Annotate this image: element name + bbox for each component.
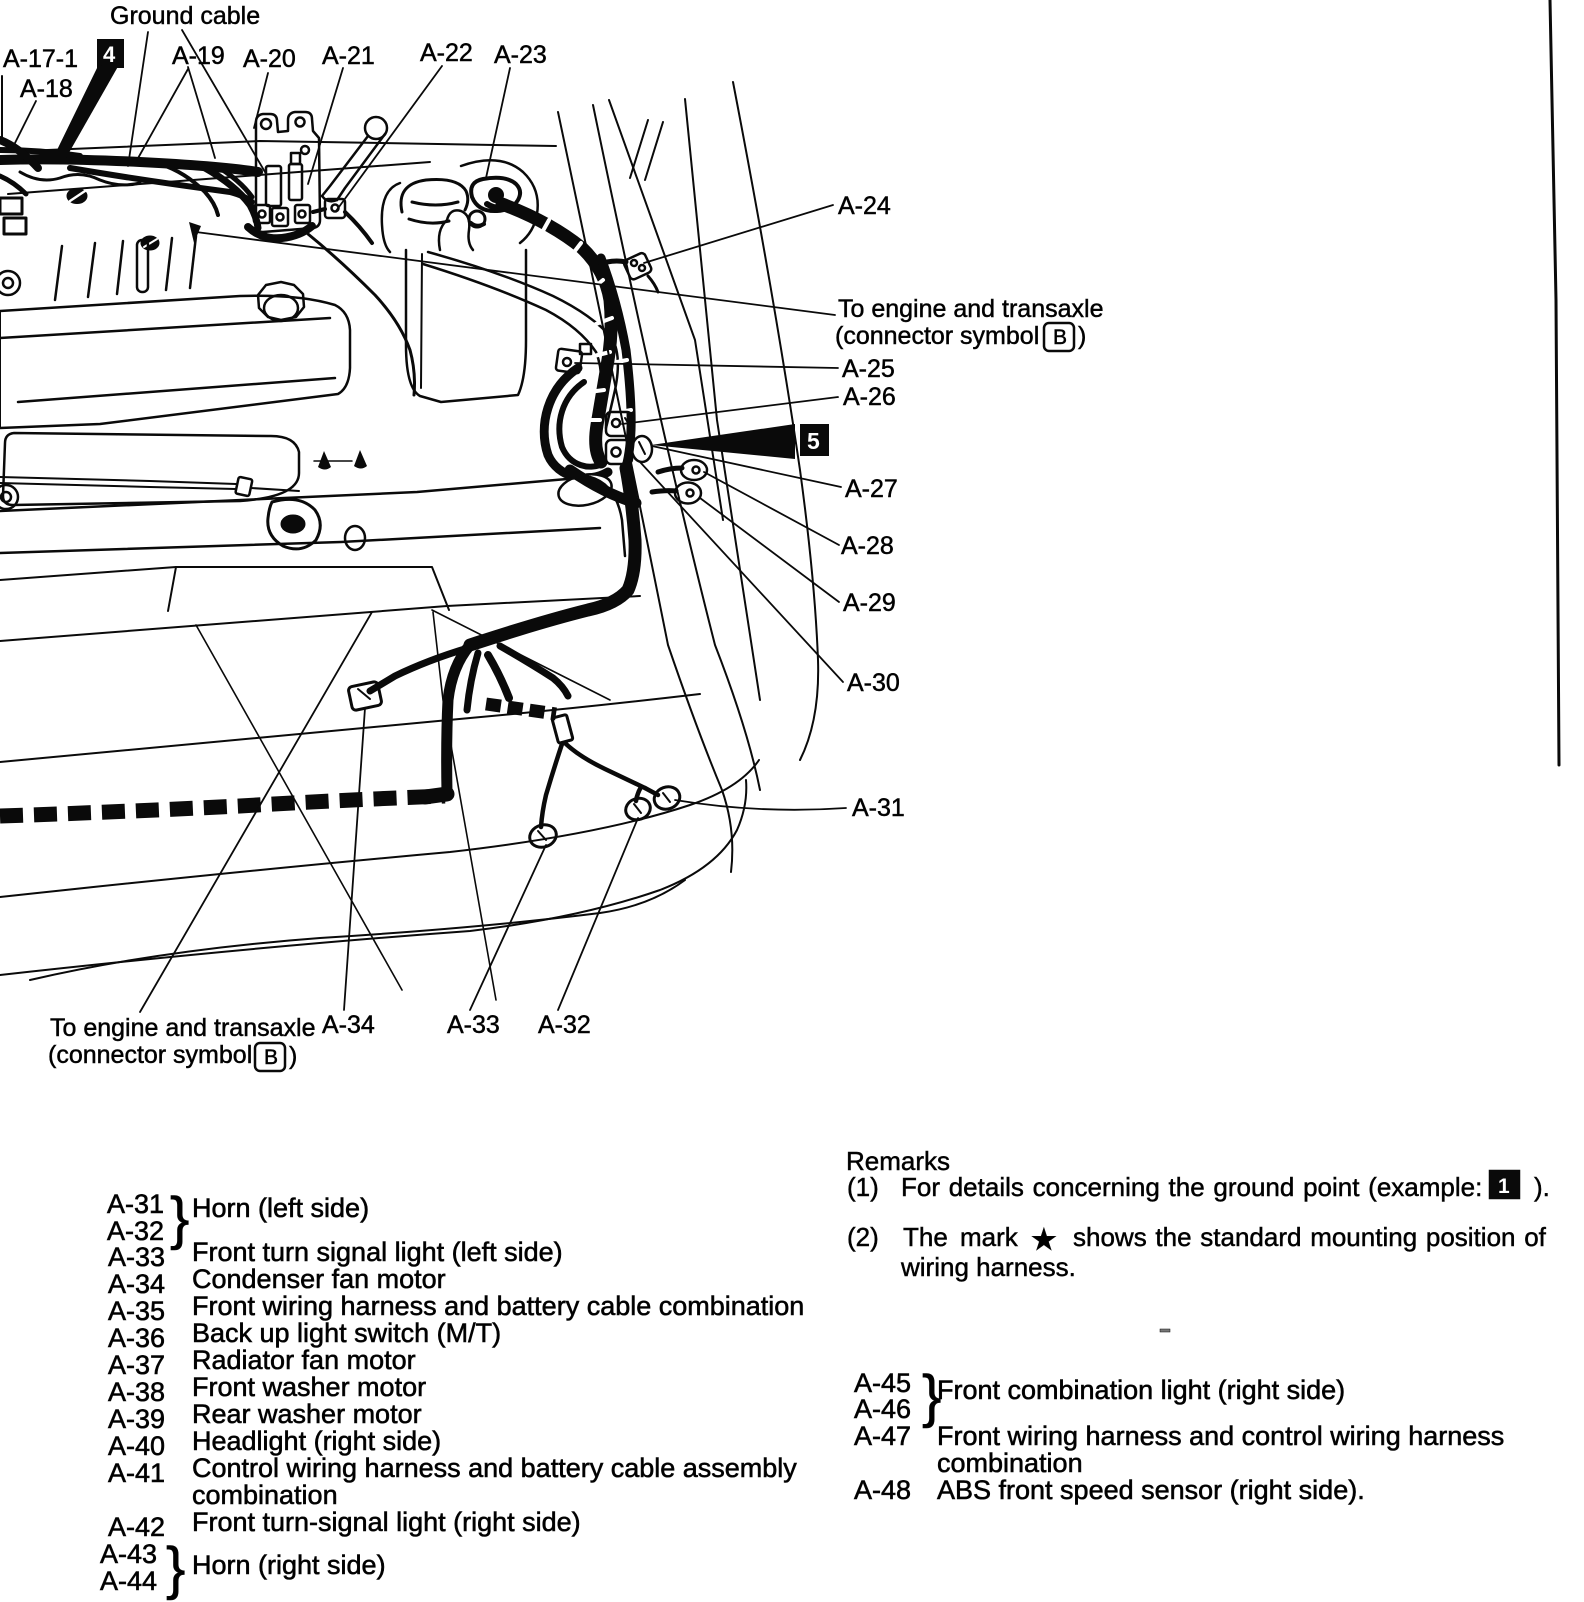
- svg-text:A-20: A-20: [243, 45, 296, 73]
- svg-text:A-17-1: A-17-1: [3, 45, 78, 73]
- svg-text:A-25: A-25: [842, 355, 895, 383]
- svg-text:A-35: A-35: [108, 1296, 165, 1326]
- svg-text:Ground cable: Ground cable: [110, 2, 260, 30]
- svg-text:A-31: A-31: [852, 794, 905, 822]
- svg-text:}: }: [166, 1536, 185, 1601]
- svg-text:Front wiring harness and contr: Front wiring harness and control wiring …: [937, 1421, 1504, 1451]
- svg-text:Back up light switch (M/T): Back up light switch (M/T): [192, 1318, 501, 1348]
- svg-text:B: B: [1053, 326, 1067, 349]
- svg-text:A-44: A-44: [100, 1566, 157, 1596]
- svg-text:): ): [1078, 322, 1086, 350]
- svg-text:(1): (1): [847, 1172, 879, 1202]
- svg-text:A-31: A-31: [107, 1189, 164, 1219]
- svg-text:A-27: A-27: [845, 475, 898, 503]
- svg-text:A-37: A-37: [108, 1350, 165, 1380]
- svg-text:}: }: [170, 1186, 189, 1251]
- svg-text:A-33: A-33: [447, 1011, 500, 1039]
- svg-text:).: ).: [1534, 1172, 1550, 1202]
- svg-text:A-28: A-28: [841, 532, 894, 560]
- svg-text:The mark: The mark: [903, 1222, 1019, 1252]
- svg-text:Horn (left side): Horn (left side): [192, 1193, 369, 1223]
- svg-text:A-23: A-23: [494, 41, 547, 69]
- svg-text:A-48: A-48: [854, 1475, 911, 1505]
- svg-text:(connector symbol: (connector symbol: [48, 1041, 252, 1069]
- svg-text:5: 5: [807, 428, 820, 454]
- svg-text:(2): (2): [847, 1222, 879, 1252]
- svg-text:To engine and transaxle: To engine and transaxle: [50, 1014, 315, 1042]
- svg-text:A-34: A-34: [108, 1269, 165, 1299]
- svg-text:Front turn-signal light (right: Front turn-signal light (right side): [192, 1507, 581, 1537]
- svg-text:A-24: A-24: [838, 192, 891, 220]
- svg-text:Rear washer motor: Rear washer motor: [192, 1399, 422, 1429]
- svg-text:ABS front speed sensor (right: ABS front speed sensor (right side).: [937, 1475, 1365, 1505]
- svg-text:A-38: A-38: [108, 1377, 165, 1407]
- svg-text:A-30: A-30: [847, 669, 900, 697]
- svg-text:Headlight (right side): Headlight (right side): [192, 1426, 441, 1456]
- svg-text:A-19: A-19: [172, 42, 225, 70]
- svg-text:Control wiring harness and bat: Control wiring harness and battery cable…: [192, 1453, 797, 1483]
- svg-text:A-33: A-33: [108, 1242, 165, 1272]
- svg-text:For details concerning the gro: For details concerning the ground point …: [901, 1172, 1482, 1202]
- svg-text:Condenser fan motor: Condenser fan motor: [192, 1264, 446, 1294]
- svg-text:A-26: A-26: [843, 383, 896, 411]
- svg-text:Front wiring harness and batte: Front wiring harness and battery cable c…: [192, 1291, 804, 1321]
- svg-text:A-18: A-18: [20, 75, 73, 103]
- svg-text:To engine and transaxle: To engine and transaxle: [838, 295, 1103, 323]
- svg-text:wiring harness.: wiring harness.: [900, 1252, 1076, 1282]
- svg-text:B: B: [264, 1046, 278, 1069]
- svg-text:): ): [289, 1042, 297, 1070]
- svg-text:A-40: A-40: [108, 1431, 165, 1461]
- svg-text:A-47: A-47: [854, 1421, 911, 1451]
- svg-text:combination: combination: [937, 1448, 1083, 1478]
- svg-text:A-29: A-29: [843, 589, 896, 617]
- svg-text:A-42: A-42: [108, 1512, 165, 1542]
- svg-text:A-36: A-36: [108, 1323, 165, 1353]
- svg-text:combination: combination: [192, 1480, 338, 1510]
- svg-text:Radiator fan motor: Radiator fan motor: [192, 1345, 416, 1375]
- svg-text:Front combination light (right: Front combination light (right side): [937, 1375, 1345, 1405]
- svg-text:Front turn signal light (left: Front turn signal light (left side): [192, 1237, 563, 1267]
- svg-text:Horn (right side): Horn (right side): [192, 1550, 386, 1580]
- svg-text:A-34: A-34: [322, 1011, 375, 1039]
- svg-text:Front washer motor: Front washer motor: [192, 1372, 426, 1402]
- svg-text:A-46: A-46: [854, 1394, 911, 1424]
- svg-text:A-39: A-39: [108, 1404, 165, 1434]
- svg-text:(connector symbol: (connector symbol: [835, 322, 1039, 350]
- svg-text:A-32: A-32: [538, 1011, 591, 1039]
- svg-text:A-43: A-43: [100, 1539, 157, 1569]
- svg-text:4: 4: [103, 42, 116, 67]
- svg-text:A-22: A-22: [420, 39, 473, 67]
- svg-text:1: 1: [1498, 1175, 1510, 1198]
- svg-text:A-41: A-41: [108, 1458, 165, 1488]
- svg-text:A-21: A-21: [322, 42, 375, 70]
- svg-text:shows the standard mounting po: shows the standard mounting position of: [1073, 1222, 1547, 1252]
